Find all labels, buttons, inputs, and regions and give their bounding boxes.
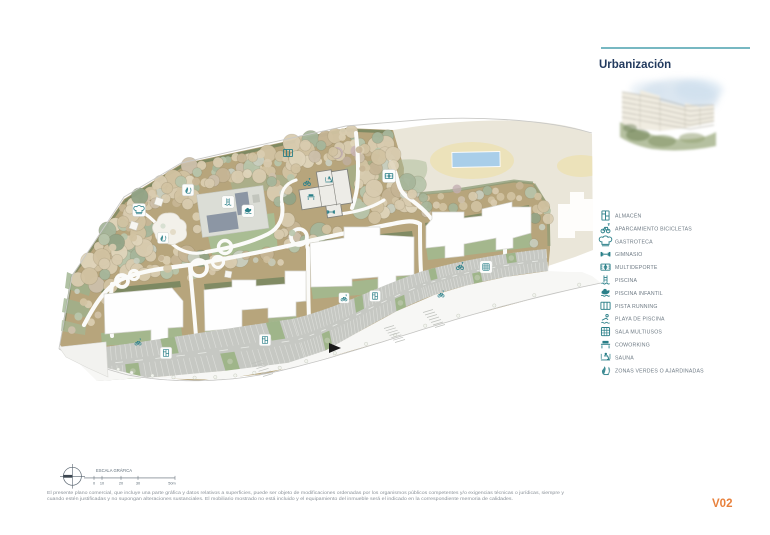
svg-text:30: 30 [136, 482, 140, 486]
svg-text:V02: V02 [712, 498, 732, 510]
svg-text:APARCAMIENTO BICICLETAS: APARCAMIENTO BICICLETAS [615, 226, 692, 232]
svg-text:PISTA RUNNING: PISTA RUNNING [615, 304, 658, 310]
svg-text:20: 20 [119, 482, 123, 486]
svg-text:GASTROTECA: GASTROTECA [615, 239, 653, 245]
svg-text:ALMACÉN: ALMACÉN [615, 213, 642, 220]
svg-text:10: 10 [100, 482, 104, 486]
svg-text:El presente plano comercial, q: El presente plano comercial, que incluye… [47, 490, 565, 495]
svg-text:PISCINA: PISCINA [615, 278, 637, 284]
svg-text:cuando estén justificadas y no: cuando estén justificadas y no supongan … [47, 496, 513, 501]
svg-text:PLAYA DE PISCINA: PLAYA DE PISCINA [615, 317, 665, 323]
svg-text:SAUNA: SAUNA [615, 355, 634, 361]
svg-text:ZONAS VERDES O AJARDINADAS: ZONAS VERDES O AJARDINADAS [615, 368, 704, 374]
svg-text:COWORKING: COWORKING [615, 343, 650, 349]
svg-text:Urbanización: Urbanización [599, 59, 671, 71]
svg-text:50m: 50m [168, 482, 175, 486]
svg-text:ESCALA GRÁFICA: ESCALA GRÁFICA [96, 468, 132, 473]
svg-text:0: 0 [93, 482, 95, 486]
svg-text:MULTIDEPORTE: MULTIDEPORTE [615, 265, 658, 271]
svg-text:PISCINA INFANTIL: PISCINA INFANTIL [615, 291, 663, 297]
svg-text:GIMNASIO: GIMNASIO [615, 252, 643, 258]
svg-text:SALA MULTIUSOS: SALA MULTIUSOS [615, 330, 662, 336]
